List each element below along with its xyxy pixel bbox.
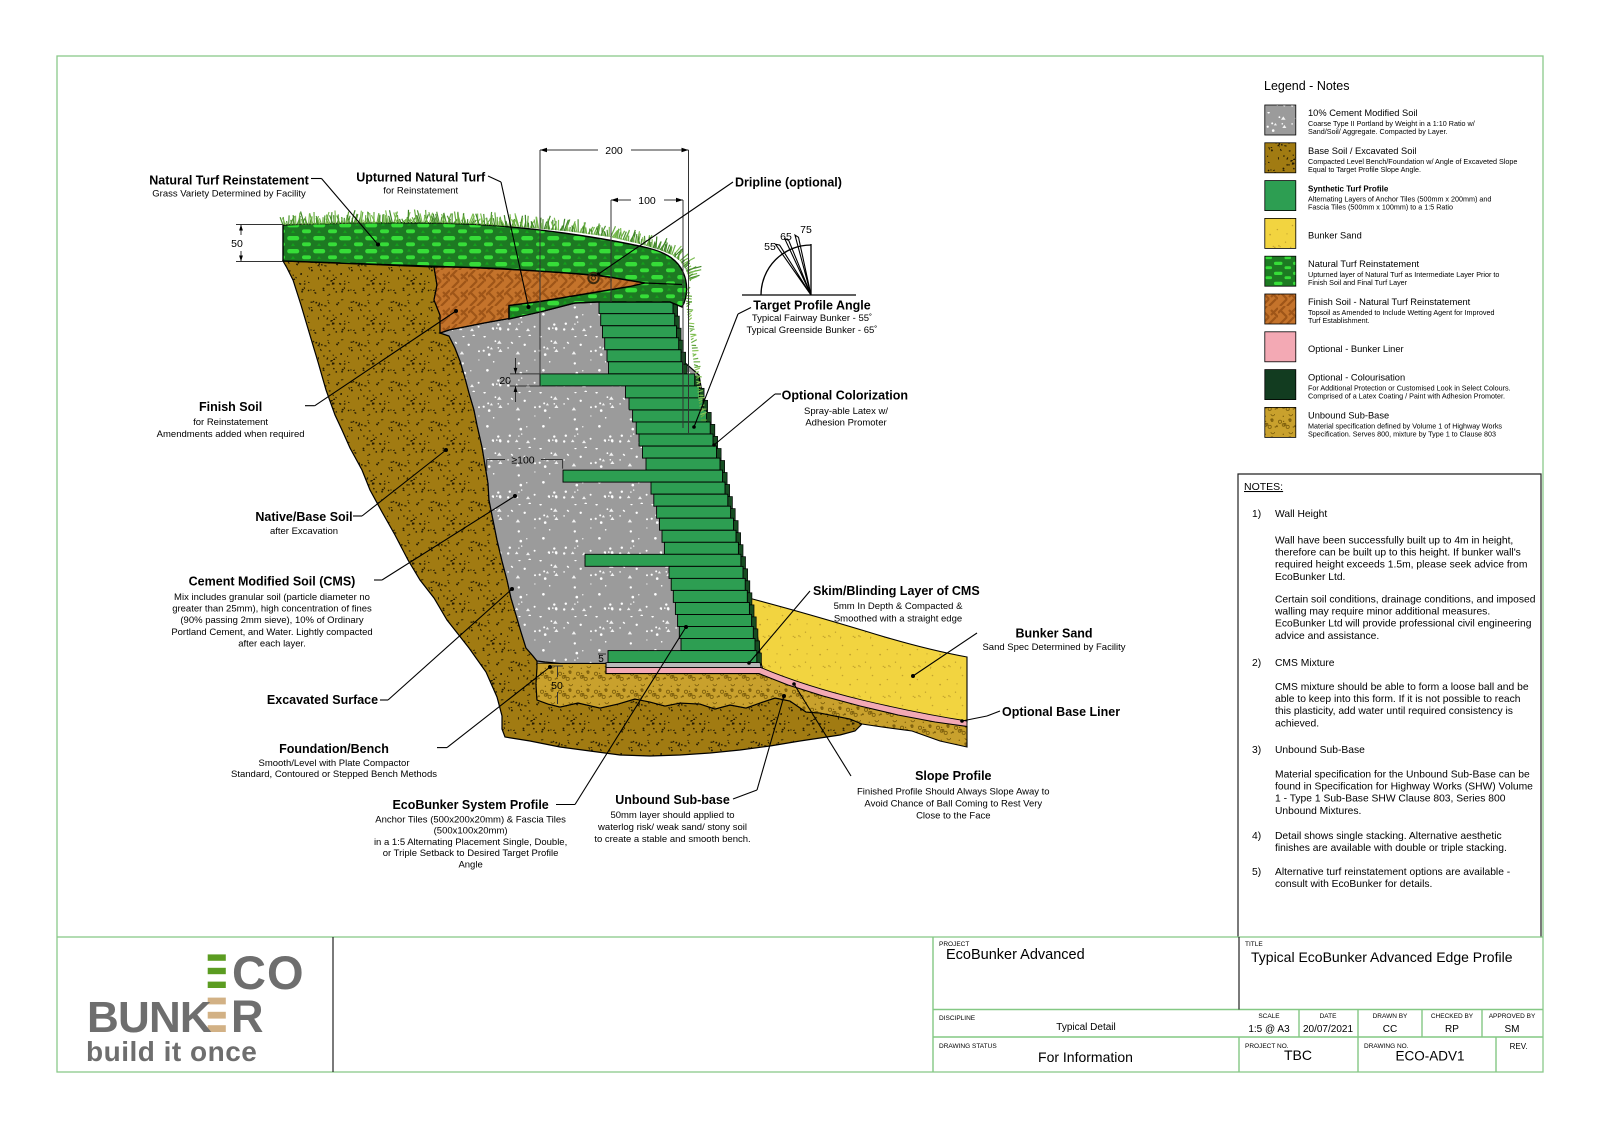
svg-text:1): 1)	[1252, 509, 1261, 520]
svg-text:65: 65	[780, 231, 792, 243]
svg-text:Cement Modified Soil (CMS): Cement Modified Soil (CMS)	[189, 575, 356, 589]
svg-text:Sand Spec Determined by Facili: Sand Spec Determined by Facility	[982, 642, 1125, 653]
svg-text:CHECKED BY: CHECKED BY	[1431, 1013, 1474, 1020]
svg-text:EcoBunker Advanced: EcoBunker Advanced	[946, 947, 1085, 963]
svg-text:Typical Fairway Bunker - 55˚: Typical Fairway Bunker - 55˚	[752, 313, 872, 324]
svg-text:2): 2)	[1252, 658, 1261, 669]
svg-text:Finish Soil: Finish Soil	[199, 400, 262, 414]
svg-text:SM: SM	[1505, 1024, 1520, 1035]
svg-text:200: 200	[605, 145, 623, 157]
svg-text:≥100: ≥100	[511, 455, 534, 467]
svg-text:Turf Establishment.: Turf Establishment.	[1308, 316, 1370, 325]
svg-text:for Reinstatement: for Reinstatement	[193, 417, 268, 428]
svg-text:found in Specification for Hig: found in Specification for Highway Works…	[1275, 782, 1533, 793]
svg-text:Adhesion Promoter: Adhesion Promoter	[805, 418, 886, 429]
svg-text:Bunker Sand: Bunker Sand	[1308, 230, 1362, 240]
svg-text:Amendments added when required: Amendments added when required	[157, 429, 305, 440]
svg-text:Optional - Bunker Liner: Optional - Bunker Liner	[1308, 344, 1404, 354]
svg-text:EcoBunker Ltd will provide pro: EcoBunker Ltd will provide professional …	[1275, 619, 1532, 630]
svg-text:greater than 25mm), high conce: greater than 25mm), high concentration o…	[172, 604, 372, 615]
svg-text:RP: RP	[1445, 1024, 1459, 1035]
svg-text:Finish Soil and Final Turf Lay: Finish Soil and Final Turf Layer	[1308, 278, 1408, 287]
svg-text:Legend - Notes: Legend - Notes	[1264, 79, 1349, 93]
svg-text:Unbound Sub-Base: Unbound Sub-Base	[1308, 410, 1389, 420]
svg-text:Anchor Tiles (500x200x20mm) &: Anchor Tiles (500x200x20mm) & Fascia Til…	[375, 815, 566, 826]
svg-text:advice and assistance.: advice and assistance.	[1275, 631, 1379, 642]
svg-text:Foundation/Bench: Foundation/Bench	[279, 742, 389, 756]
svg-text:20: 20	[499, 375, 511, 387]
svg-text:50: 50	[231, 238, 243, 250]
svg-text:Native/Base Soil: Native/Base Soil	[255, 510, 352, 524]
svg-text:CC: CC	[1383, 1024, 1397, 1035]
svg-text:Natural Turf Reinstatement: Natural Turf Reinstatement	[1308, 259, 1420, 269]
svg-text:50mm layer should applied to: 50mm layer should applied to	[610, 810, 734, 821]
svg-text:Equal to Target Profile Slope: Equal to Target Profile Slope Angle.	[1308, 165, 1421, 174]
svg-text:Unbound Sub-base: Unbound Sub-base	[615, 793, 730, 807]
svg-text:waterlog risk/ weak sand/ ston: waterlog risk/ weak sand/ stony soil	[597, 822, 747, 833]
svg-text:or Triple Setback to Desired T: or Triple Setback to Desired Target Prof…	[383, 848, 559, 859]
svg-text:APPROVED BY: APPROVED BY	[1489, 1013, 1536, 1020]
svg-text:Typical Detail: Typical Detail	[1056, 1022, 1115, 1033]
svg-text:Synthetic Turf Profile: Synthetic Turf Profile	[1308, 185, 1389, 194]
svg-text:Spray-able Latex w/: Spray-able Latex w/	[804, 406, 888, 417]
svg-text:Certain soil conditions, drain: Certain soil conditions, drainage condit…	[1275, 595, 1536, 606]
svg-text:to create a stable and smooth: to create a stable and smooth bench.	[594, 834, 750, 845]
svg-text:REV.: REV.	[1510, 1042, 1528, 1051]
svg-text:in a 1:5 Alternating Placement: in a 1:5 Alternating Placement Single, D…	[374, 837, 567, 848]
svg-text:3): 3)	[1252, 745, 1261, 756]
svg-text:BUNK: BUNK	[87, 993, 212, 1042]
svg-text:Excavated Surface: Excavated Surface	[267, 693, 378, 707]
svg-text:Mix includes granular soil (pa: Mix includes granular soil (particle dia…	[174, 592, 370, 603]
svg-text:EcoBunker Ltd.: EcoBunker Ltd.	[1275, 572, 1345, 583]
svg-text:DISCIPLINE: DISCIPLINE	[939, 1015, 976, 1022]
svg-text:TITLE: TITLE	[1245, 941, 1263, 948]
svg-text:Optional Colorization: Optional Colorization	[782, 389, 908, 403]
svg-text:Specification. Serves 800, mix: Specification. Serves 800, mixture by Ty…	[1308, 429, 1496, 438]
svg-text:5: 5	[598, 654, 604, 665]
svg-text:for Reinstatement: for Reinstatement	[383, 186, 458, 197]
svg-text:Smoothed with a straight edge: Smoothed with a straight edge	[834, 614, 962, 625]
svg-text:Comprised of a Latex Coating /: Comprised of a Latex Coating / Paint wit…	[1308, 392, 1505, 401]
svg-text:able to keep into this form. I: able to keep into this form. If it is no…	[1275, 694, 1521, 705]
svg-text:Dripline (optional): Dripline (optional)	[735, 176, 842, 190]
svg-text:Alternative turf reinstatement: Alternative turf reinstatement options a…	[1275, 867, 1510, 878]
svg-text:ECO-ADV1: ECO-ADV1	[1395, 1049, 1464, 1064]
svg-text:(90% passing 2mm sieve), 10% o: (90% passing 2mm sieve), 10% of Ordinary	[180, 615, 363, 626]
svg-text:Typical EcoBunker Advanced Edg: Typical EcoBunker Advanced Edge Profile	[1251, 949, 1513, 965]
svg-text:Angle: Angle	[458, 859, 482, 870]
svg-text:Finish Soil - Natural Turf Rei: Finish Soil - Natural Turf Reinstatement	[1308, 297, 1471, 307]
svg-text:Material specification for the: Material specification for the Unbound S…	[1275, 770, 1530, 781]
svg-text:1:5 @ A3: 1:5 @ A3	[1248, 1024, 1290, 1035]
svg-text:Optional - Colourisation: Optional - Colourisation	[1308, 373, 1405, 383]
svg-text:CMS mixture should be able to: CMS mixture should be able to form a loo…	[1275, 682, 1529, 693]
svg-text:10% Cement Modified Soil: 10% Cement Modified Soil	[1308, 108, 1418, 118]
svg-text:Grass Variety Determined by Fa: Grass Variety Determined by Facility	[152, 189, 306, 200]
svg-text:Wall have been successfully bu: Wall have been successfully built up to …	[1275, 536, 1513, 547]
svg-text:4): 4)	[1252, 831, 1261, 842]
svg-text:Optional Base Liner: Optional Base Liner	[1002, 705, 1120, 719]
svg-text:Wall Height: Wall Height	[1275, 509, 1327, 520]
svg-text:CMS Mixture: CMS Mixture	[1275, 658, 1335, 669]
svg-text:TBC: TBC	[1284, 1047, 1312, 1063]
svg-text:20/07/2021: 20/07/2021	[1303, 1024, 1353, 1035]
svg-text:after each layer.: after each layer.	[238, 638, 306, 649]
svg-text:SCALE: SCALE	[1258, 1013, 1280, 1020]
svg-text:Skim/Blinding Layer of CMS: Skim/Blinding Layer of CMS	[813, 584, 980, 598]
svg-text:Target Profile Angle: Target Profile Angle	[753, 299, 870, 313]
svg-text:EcoBunker System Profile: EcoBunker System Profile	[392, 798, 548, 812]
svg-text:Standard, Contoured or Stepped: Standard, Contoured or Stepped Bench Met…	[231, 769, 437, 780]
svg-text:Sand/Soil/ Aggregate. Compacte: Sand/Soil/ Aggregate. Compacted by Layer…	[1308, 127, 1447, 136]
svg-text:build it once: build it once	[86, 1036, 257, 1067]
svg-text:5mm In Depth & Compacted &: 5mm In Depth & Compacted &	[834, 601, 963, 612]
svg-text:required height exceeds 1.5m,: required height exceeds 1.5m, please see…	[1275, 560, 1527, 571]
svg-text:Unbound Mixtures.: Unbound Mixtures.	[1275, 806, 1361, 817]
svg-text:Fascia Tiles (500mm x 100mm) t: Fascia Tiles (500mm x 100mm) to a 1:5 Ra…	[1308, 203, 1453, 212]
svg-text:DRAWN BY: DRAWN BY	[1373, 1013, 1408, 1020]
svg-text:PROJECT NO.: PROJECT NO.	[1245, 1043, 1289, 1050]
svg-text:after Excavation: after Excavation	[270, 526, 338, 537]
svg-text:Upturned Natural Turf: Upturned Natural Turf	[356, 171, 486, 185]
svg-text:Close to the Face: Close to the Face	[916, 811, 990, 822]
svg-text:Typical Greenside Bunker - 65˚: Typical Greenside Bunker - 65˚	[747, 325, 878, 336]
svg-text:R: R	[231, 991, 264, 1042]
svg-text:75: 75	[800, 224, 812, 236]
svg-text:Avoid Chance of Ball Coming to: Avoid Chance of Ball Coming to Rest Very	[864, 799, 1042, 810]
svg-text:50: 50	[551, 680, 563, 692]
svg-text:Natural Turf Reinstatement: Natural Turf Reinstatement	[149, 174, 309, 188]
svg-text:Detail shows single stacking.: Detail shows single stacking. Alternativ…	[1275, 831, 1502, 842]
svg-text:therefore can be built up to t: therefore can be built up to this height…	[1275, 548, 1521, 559]
svg-text:Smooth/Level with Plate Compac: Smooth/Level with Plate Compactor	[258, 758, 409, 769]
svg-text:walling may require minor addi: walling may require minor additional mea…	[1274, 607, 1490, 618]
svg-text:Base Soil / Excavated Soil: Base Soil / Excavated Soil	[1308, 146, 1417, 156]
svg-text:55: 55	[764, 241, 776, 253]
svg-text:Finished Profile Should Always: Finished Profile Should Always Slope Awa…	[857, 787, 1050, 798]
svg-text:Portland Cement, and Water. L: Portland Cement, and Water. Lightly comp…	[171, 627, 372, 638]
svg-text:(500x100x20mm): (500x100x20mm)	[434, 826, 508, 837]
svg-text:DRAWING STATUS: DRAWING STATUS	[939, 1043, 997, 1050]
svg-text:Unbound Sub-Base: Unbound Sub-Base	[1275, 745, 1365, 756]
svg-text:achieved.: achieved.	[1275, 718, 1319, 729]
svg-text:consult with EcoBunker for det: consult with EcoBunker for details.	[1275, 879, 1432, 890]
svg-text:100: 100	[638, 195, 656, 207]
svg-text:DATE: DATE	[1320, 1013, 1338, 1020]
svg-text:For Information: For Information	[1038, 1049, 1133, 1065]
svg-text:this plasticity, add water unt: this plasticity, add water until require…	[1275, 706, 1513, 717]
svg-text:Slope Profile: Slope Profile	[915, 769, 991, 783]
svg-text:Bunker Sand: Bunker Sand	[1015, 627, 1092, 641]
svg-text:finishes are available with do: finishes are available with double or tr…	[1275, 843, 1507, 854]
svg-text:5): 5)	[1252, 867, 1261, 878]
svg-text:NOTES:: NOTES:	[1244, 481, 1283, 493]
svg-text:1 - Type 1 Sub-Base SHW Clause: 1 - Type 1 Sub-Base SHW Clause 803, Seri…	[1275, 794, 1506, 805]
